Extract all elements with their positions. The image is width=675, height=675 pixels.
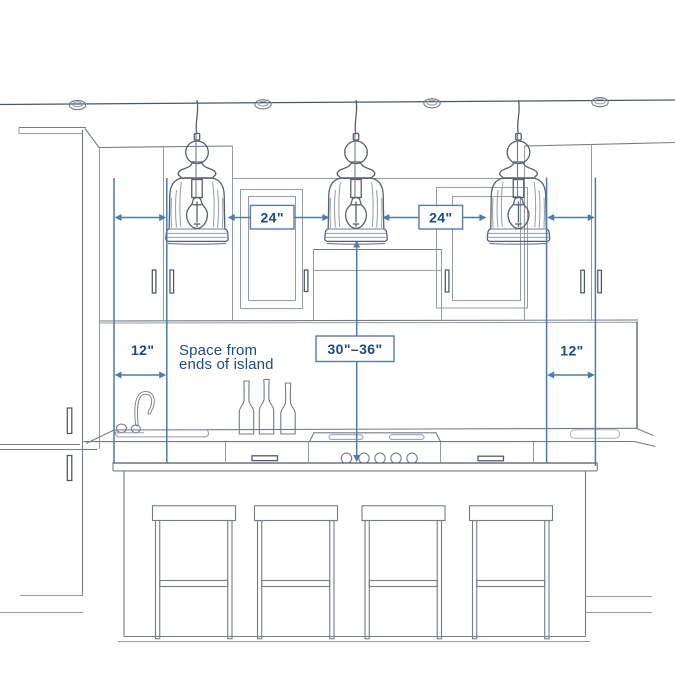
svg-text:12": 12": [131, 342, 154, 358]
svg-text:30"–36": 30"–36": [327, 341, 382, 357]
svg-text:ends of island: ends of island: [179, 356, 274, 373]
svg-text:24": 24": [429, 209, 452, 225]
svg-text:12": 12": [560, 343, 583, 359]
svg-text:24": 24": [260, 209, 283, 225]
